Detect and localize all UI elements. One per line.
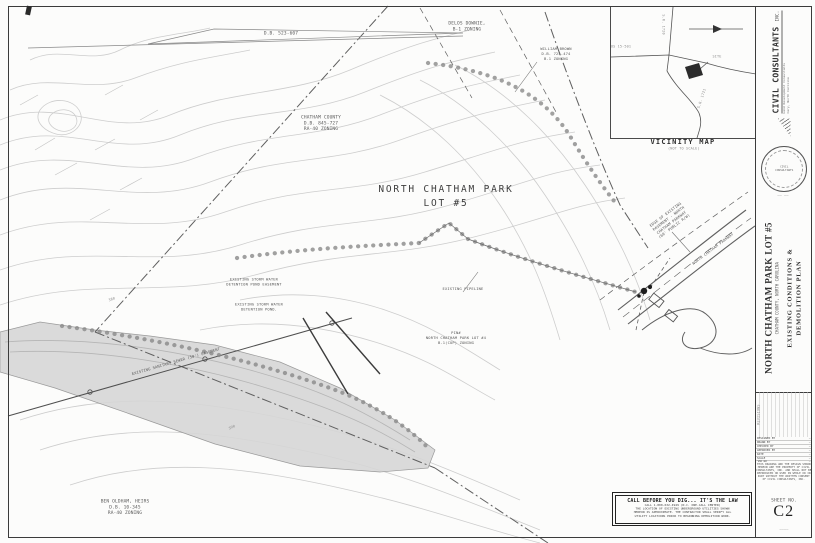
plan-sheet: D.B. 523-607 DELOS DOWNIE, B-1 ZONING WI… xyxy=(0,0,815,543)
titleblock-divider xyxy=(755,6,756,537)
sheet-border xyxy=(8,6,812,538)
